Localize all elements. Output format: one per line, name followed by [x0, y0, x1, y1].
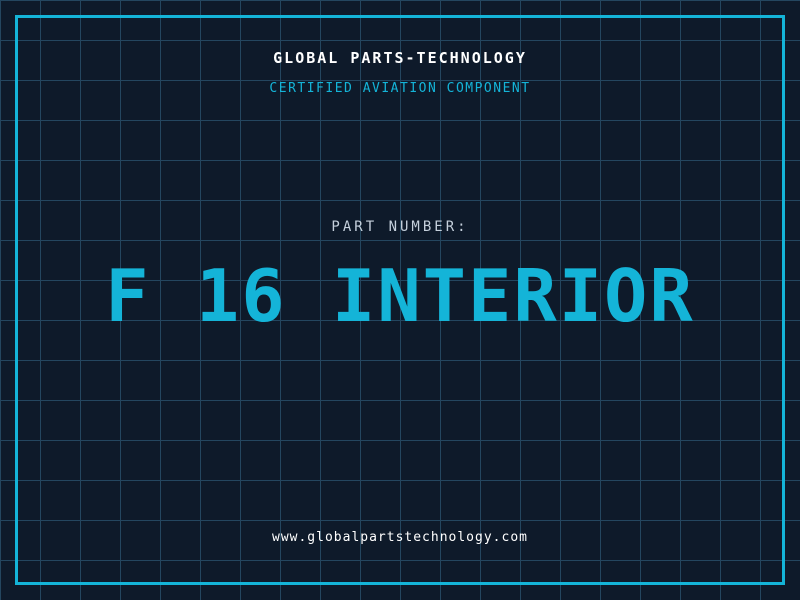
part-number-value: F 16 INTERIOR — [0, 254, 800, 338]
company-name: GLOBAL PARTS-TECHNOLOGY — [0, 49, 800, 67]
part-number-label: PART NUMBER: — [0, 219, 800, 235]
blueprint-canvas: GLOBAL PARTS-TECHNOLOGY CERTIFIED AVIATI… — [0, 0, 800, 600]
website-url: www.globalpartstechnology.com — [0, 530, 800, 545]
certification-tagline: CERTIFIED AVIATION COMPONENT — [0, 81, 800, 96]
